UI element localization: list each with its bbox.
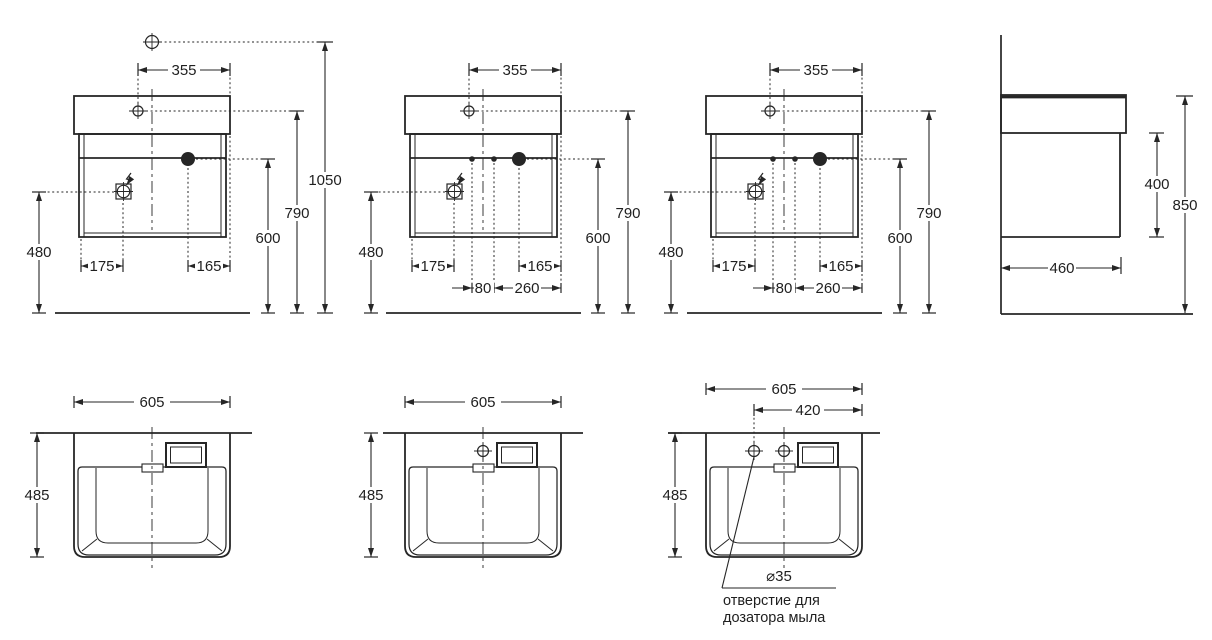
- top-view-variant-3: 605 420 485 ⌀35 отверстие для дозатора м…: [659, 381, 880, 626]
- overflow-notch: [142, 464, 163, 472]
- side-view: 400 850 460: [1001, 35, 1201, 314]
- fixing-hole-icon: [469, 156, 475, 162]
- dim-label: 175: [89, 258, 114, 275]
- dim-label: 485: [24, 487, 49, 504]
- dim-width: 605: [706, 381, 862, 398]
- lightning-icon: [759, 173, 764, 185]
- dim-label: 850: [1172, 197, 1197, 214]
- soap-dispenser-annotation: ⌀35 отверстие для дозатора мыла: [722, 457, 836, 626]
- drawing-canvas: 355 1050 790 600 480 175: [0, 0, 1212, 640]
- dim-label: 165: [828, 258, 853, 275]
- dim-drain-height: 600: [252, 159, 284, 313]
- dim-label: 165: [196, 258, 221, 275]
- dim-socket-offset: 175: [412, 258, 454, 275]
- dim-label: 80: [776, 280, 793, 297]
- dim-cabinet-height: 400: [1141, 133, 1173, 237]
- dim-top-width: 355: [469, 62, 561, 79]
- dim-depth: 485: [659, 433, 691, 557]
- dim-label: 600: [585, 230, 610, 247]
- faucet-hole-icon: [129, 103, 147, 119]
- dim-label: 355: [803, 62, 828, 79]
- cabinet-outline: [711, 134, 858, 237]
- dim-total-height: 850: [1169, 96, 1201, 313]
- dim-label: 355: [502, 62, 527, 79]
- overflow-notch: [473, 464, 494, 472]
- dim-socket-height: 480: [23, 192, 55, 313]
- fixing-hole-icon: [491, 156, 497, 162]
- lightning-icon: [458, 173, 463, 185]
- dim-top-width: 355: [138, 62, 230, 79]
- dim-label: 355: [171, 62, 196, 79]
- faucet-hole-icon: [761, 103, 779, 119]
- dim-label: 175: [420, 258, 445, 275]
- dim-label: 605: [139, 394, 164, 411]
- dim-holes-to-edge: 260: [795, 280, 862, 297]
- dim-socket-offset: 175: [81, 258, 123, 275]
- dim-drain-offset: 165: [820, 258, 862, 275]
- dim-hole-spacing: 80: [753, 280, 795, 297]
- drain-hole-icon: [181, 152, 195, 166]
- dim-label: 600: [255, 230, 280, 247]
- dim-deck-height: 790: [281, 111, 313, 313]
- dim-socket-offset: 175: [713, 258, 755, 275]
- cabinet-outline: [410, 134, 557, 237]
- note-line-1: отверстие для: [723, 593, 820, 609]
- mounting-point-icon: [143, 33, 161, 51]
- fixing-hole-icon: [792, 156, 798, 162]
- dim-label: 480: [658, 244, 683, 261]
- hole-diameter-label: ⌀35: [766, 568, 792, 585]
- dim-depth: 460: [1001, 257, 1121, 277]
- overflow-notch: [774, 464, 795, 472]
- power-socket-icon: [114, 173, 133, 201]
- dim-socket-height: 480: [355, 192, 387, 313]
- dim-label: 400: [1144, 176, 1169, 193]
- note-line-2: дозатора мыла: [723, 610, 826, 626]
- dim-label: 485: [662, 487, 687, 504]
- dim-drain-height: 600: [884, 159, 916, 313]
- drain-hole-icon: [512, 152, 526, 166]
- dim-label: 480: [358, 244, 383, 261]
- power-socket-icon: [746, 173, 765, 201]
- power-socket-icon: [445, 173, 464, 201]
- dim-drain-offset: 165: [188, 258, 230, 275]
- front-view-variant-2: 355 790 600 480 175 165: [355, 62, 644, 313]
- dim-label: 165: [527, 258, 552, 275]
- dim-drain-offset: 165: [519, 258, 561, 275]
- top-view-variant-1: 605 485: [21, 394, 252, 568]
- cabinet-outline: [79, 134, 226, 237]
- dim-label: 600: [887, 230, 912, 247]
- drain-hole-icon: [813, 152, 827, 166]
- dim-holes-to-edge: 260: [494, 280, 561, 297]
- technical-drawing: 355 1050 790 600 480 175: [0, 0, 1212, 640]
- dim-label: 790: [615, 205, 640, 222]
- basin-side-outline: [1001, 95, 1126, 133]
- dim-label: 260: [815, 280, 840, 297]
- dim-deck-height: 790: [913, 111, 945, 313]
- dim-label: 175: [721, 258, 746, 275]
- dim-label: 460: [1049, 260, 1074, 277]
- dim-label: 420: [795, 402, 820, 419]
- dim-width: 605: [74, 394, 230, 411]
- dim-label: 260: [514, 280, 539, 297]
- dim-depth: 485: [355, 433, 387, 557]
- front-view-variant-1: 355 1050 790 600 480 175: [23, 33, 345, 313]
- lightning-icon: [127, 173, 132, 185]
- dim-top-width: 355: [770, 62, 862, 79]
- fixing-hole-icon: [770, 156, 776, 162]
- dim-hole-offset: 420: [754, 402, 862, 419]
- top-view-variant-2: 605 485: [355, 394, 583, 568]
- leader-line: [722, 457, 754, 588]
- dim-label: 790: [284, 205, 309, 222]
- dim-label: 790: [916, 205, 941, 222]
- dim-label: 485: [358, 487, 383, 504]
- dim-depth: 485: [21, 433, 53, 557]
- front-view-variant-3: 355 790 600 480 175 165: [655, 62, 945, 313]
- dim-label: 80: [475, 280, 492, 297]
- dim-label: 1050: [308, 172, 341, 189]
- dim-width: 605: [405, 394, 561, 411]
- dim-socket-height: 480: [655, 192, 687, 313]
- dim-label: 605: [470, 394, 495, 411]
- dim-label: 480: [26, 244, 51, 261]
- dim-overall-height: 1050: [305, 42, 345, 313]
- faucet-hole-icon: [460, 103, 478, 119]
- dim-drain-height: 600: [582, 159, 614, 313]
- dim-hole-spacing: 80: [452, 280, 494, 297]
- dim-label: 605: [771, 381, 796, 398]
- dim-deck-height: 790: [612, 111, 644, 313]
